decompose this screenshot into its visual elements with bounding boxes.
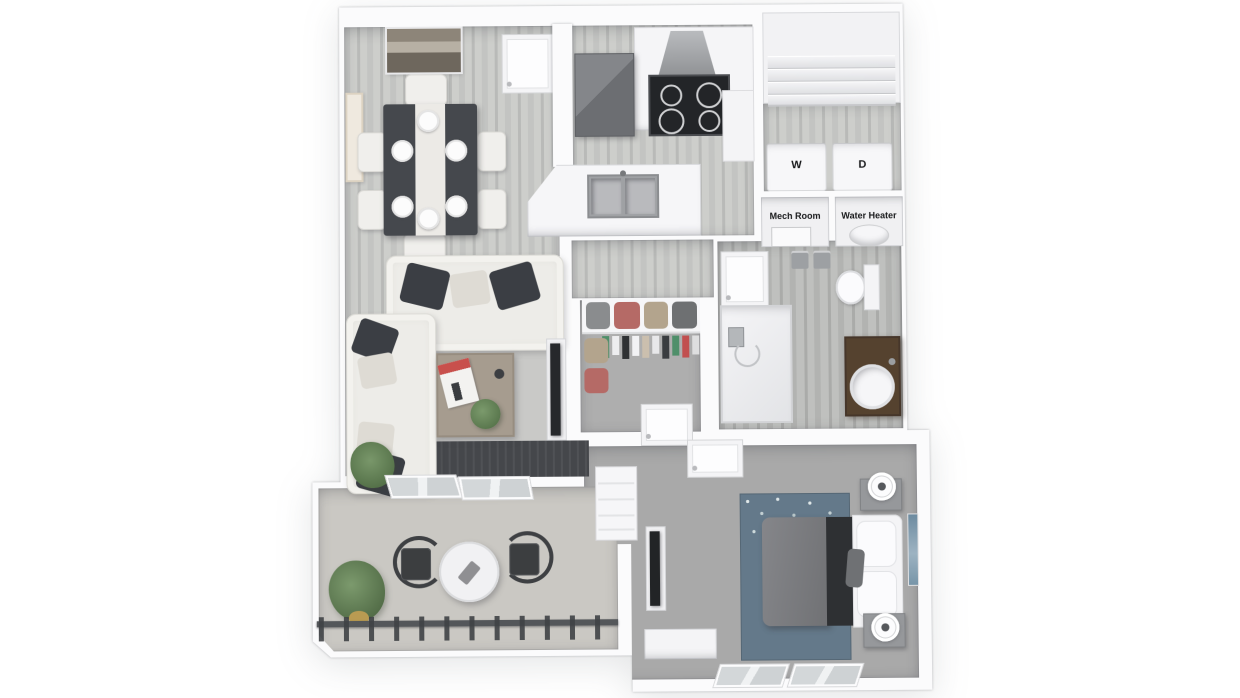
partition-wall [552,24,573,167]
folded-clothes [614,302,640,329]
bed-duvet [762,517,829,626]
refrigerator [574,53,634,137]
patio-railing [317,615,618,643]
wall-art [387,28,461,72]
garment [622,336,629,359]
throw-pillow [399,262,451,311]
corner-cabinet [722,90,755,162]
closet-door [641,404,693,446]
hanging-clothes [602,335,700,360]
stair-tread [768,94,896,107]
bed [762,514,904,628]
garment [612,336,619,355]
place-setting [392,196,414,218]
table-item [458,560,481,585]
bedroom-window [788,664,863,687]
dryer: D [832,143,892,191]
door-handle [726,295,731,300]
entry-door [502,34,554,94]
place-setting [418,207,440,229]
bistro-chair [393,536,437,593]
coffee-table [436,353,515,438]
bistro-chair [501,531,545,588]
place-setting [391,140,413,162]
burner [698,110,720,132]
toilet [835,264,883,310]
water-heater-tank [849,224,889,246]
water-heater-room: Water Heater [835,196,903,246]
folded-clothes [586,302,610,329]
accent-pillow [845,548,865,588]
bedroom-tv [650,531,661,606]
kitchen-island [527,164,701,237]
place-setting [417,110,439,132]
mech-room-label: Mech Room [761,211,829,221]
garment [632,336,639,356]
folded-clothes [644,302,668,329]
bedroom-wall-art [908,514,918,584]
mech-equipment [771,227,811,247]
bistro-table [439,541,500,602]
towel-hook [813,253,830,269]
washer-label: W [767,159,827,171]
folded-clothes [584,368,608,393]
shelf-line [598,482,634,484]
shelf-line [598,514,634,516]
entry-stairwell [762,12,900,104]
garment [682,336,689,358]
dining-table [383,104,477,236]
door-handle [692,466,697,471]
shower-hose-icon [734,341,760,367]
place-setting [445,140,467,162]
candle [494,369,504,379]
throw-pillow [488,260,541,311]
bedroom-door [687,439,743,478]
washer: W [766,143,826,191]
shelf-line [598,528,634,530]
faucet-icon [888,358,895,365]
door-handle [646,434,651,439]
garment [672,336,679,356]
faucet-icon [620,170,626,176]
table-lamp [871,613,899,641]
living-tv [550,343,561,435]
burner [660,84,682,106]
mech-room: Mech Room [761,197,829,247]
garment [662,336,669,359]
garment [692,335,699,354]
shelf-line [598,498,634,500]
chair-seat [509,543,539,575]
burner [696,82,722,108]
folded-clothes [584,338,608,363]
shower [720,305,793,424]
toilet-bowl [836,270,866,304]
bathroom-vanity [844,336,901,416]
dining-chair [405,74,447,106]
floor-plan-render: W D Mech Room Water Heater [0,0,1240,698]
dining-chair [357,132,386,172]
railing-posts [319,615,616,641]
sink-basin [625,178,655,214]
apartment-plan: W D Mech Room Water Heater [299,1,944,698]
hallway-floor [572,239,714,298]
kitchen-sink [587,174,659,218]
chair-seat [401,548,431,580]
place-setting [445,195,467,217]
sliding-glass-door [385,475,462,498]
bedroom-window [714,664,789,687]
door-handle [507,82,512,87]
towel-hook [791,253,808,269]
dining-chair [477,189,506,229]
bedroom-dresser [644,629,717,660]
sink-basin [591,178,621,214]
bedroom-entry-shelves [595,466,638,541]
table-plant [470,399,500,429]
throw-pillow [449,270,491,309]
table-lamp [868,472,896,500]
toilet-tank [863,264,879,310]
burner [658,108,684,134]
garment [642,336,649,358]
water-heater-label: Water Heater [835,210,903,220]
range-cooktop [650,76,728,134]
throw-pillow [357,352,398,390]
garment [652,336,659,354]
closet-shelf-top [582,297,700,334]
dining-chair [477,131,506,171]
dining-chair [358,190,387,230]
dryer-label: D [832,159,892,171]
bathroom-door [720,251,768,307]
magazine [437,358,479,409]
folded-clothes [672,301,697,328]
sliding-glass-door [459,477,533,500]
vanity-sink [850,364,896,409]
